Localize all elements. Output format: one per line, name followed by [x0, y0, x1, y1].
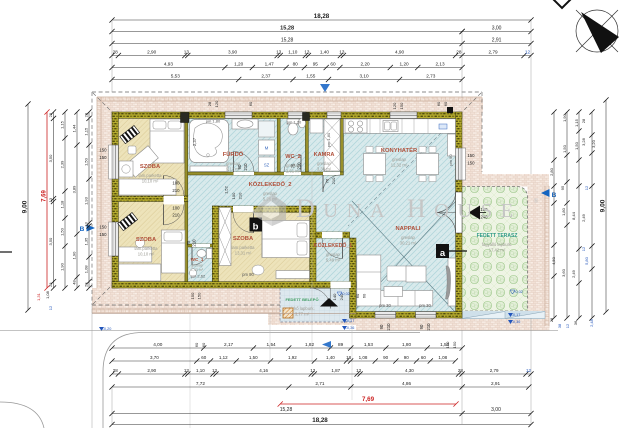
svg-text:9,00: 9,00: [600, 199, 607, 212]
svg-text:2,73: 2,73: [426, 74, 436, 79]
svg-text:28: 28: [581, 118, 586, 123]
svg-text:150: 150: [99, 148, 107, 153]
svg-text:4,50: 4,50: [551, 256, 556, 265]
svg-text:2,90: 2,90: [147, 368, 156, 373]
svg-text:greslap: greslap: [392, 157, 406, 162]
svg-text:4,16: 4,16: [259, 368, 268, 373]
svg-text:pm 90: pm 90: [448, 154, 453, 166]
svg-text:60: 60: [421, 355, 427, 360]
svg-text:1,90: 1,90: [60, 262, 65, 271]
svg-text:SZ: SZ: [264, 163, 270, 168]
svg-text:1,10: 1,10: [196, 368, 205, 373]
svg-text:1,54: 1,54: [267, 342, 277, 347]
svg-text:®: ®: [534, 198, 539, 205]
svg-text:KONYHATÉR: KONYHATÉR: [381, 146, 418, 154]
svg-text:5,53: 5,53: [171, 74, 181, 79]
svg-text:1,20: 1,20: [234, 62, 244, 67]
svg-text:75: 75: [186, 240, 191, 245]
svg-text:15,28: 15,28: [280, 407, 293, 413]
svg-text:1,35: 1,35: [84, 237, 89, 246]
svg-text:4,86: 4,86: [402, 381, 412, 386]
svg-text:3,89: 3,89: [72, 185, 77, 194]
svg-text:28: 28: [48, 112, 53, 117]
svg-text:18: 18: [346, 355, 352, 360]
svg-text:2,79: 2,79: [489, 50, 499, 55]
svg-text:1,50: 1,50: [249, 355, 258, 360]
svg-text:1,50: 1,50: [574, 141, 579, 150]
svg-text:lam.parketta: lam.parketta: [231, 245, 255, 250]
svg-text:60: 60: [355, 293, 360, 298]
svg-text:1,43 m²: 1,43 m²: [191, 268, 204, 272]
svg-text:4,00: 4,00: [153, 342, 163, 347]
svg-text:greslap: greslap: [401, 235, 415, 240]
svg-text:3,50: 3,50: [48, 237, 53, 246]
svg-text:2,39: 2,39: [60, 160, 65, 169]
svg-text:1,93: 1,93: [84, 196, 89, 205]
svg-text:90: 90: [383, 355, 389, 360]
svg-text:1,90: 1,90: [562, 113, 567, 122]
svg-text:2,13: 2,13: [435, 62, 445, 67]
svg-text:140: 140: [332, 293, 337, 300]
svg-text:-0,36: -0,36: [346, 326, 355, 330]
svg-text:3,00: 3,00: [492, 26, 502, 32]
svg-text:SZOBA: SZOBA: [136, 237, 157, 243]
svg-text:3,50: 3,50: [48, 154, 53, 163]
svg-text:1,82: 1,82: [305, 342, 315, 347]
svg-text:13: 13: [84, 222, 89, 227]
svg-text:28: 28: [84, 282, 89, 287]
svg-text:-0,36: -0,36: [512, 320, 521, 324]
svg-text:150: 150: [190, 292, 195, 299]
svg-text:greslap: greslap: [191, 264, 203, 268]
svg-text:1,52: 1,52: [224, 185, 229, 194]
svg-text:M: M: [265, 146, 269, 151]
svg-text:30,21 m²: 30,21 m²: [400, 240, 417, 245]
svg-text:1,44: 1,44: [72, 124, 77, 133]
svg-text:pm 2,62: pm 2,62: [191, 274, 206, 279]
svg-text:210: 210: [386, 323, 391, 331]
svg-text:-0,17: -0,17: [512, 313, 521, 317]
svg-text:1,53: 1,53: [364, 342, 374, 347]
svg-text:150: 150: [99, 232, 107, 237]
svg-text:FÜRDŐ: FÜRDŐ: [223, 151, 244, 158]
svg-text:2,79: 2,79: [490, 368, 499, 373]
svg-text:7,72: 7,72: [196, 381, 206, 386]
svg-text:2,90: 2,90: [147, 50, 157, 55]
svg-text:210: 210: [297, 162, 302, 170]
svg-text:60: 60: [436, 101, 441, 106]
svg-text:1,10: 1,10: [288, 50, 298, 55]
svg-text:13: 13: [356, 368, 362, 373]
svg-text:150: 150: [467, 153, 475, 158]
svg-text:1,50: 1,50: [60, 227, 65, 236]
svg-text:3,77 m²: 3,77 m²: [295, 311, 310, 316]
svg-text:10,10 m²: 10,10 m²: [142, 178, 159, 183]
svg-text:90: 90: [237, 164, 242, 169]
svg-text:NAPPALI: NAPPALI: [395, 226, 420, 232]
svg-text:210: 210: [172, 188, 180, 193]
svg-text:1,31: 1,31: [36, 292, 41, 301]
svg-text:120: 120: [392, 102, 397, 109]
svg-text:90: 90: [419, 324, 424, 329]
svg-text:13: 13: [48, 197, 53, 202]
svg-text:1,92: 1,92: [288, 355, 297, 360]
svg-text:2,37: 2,37: [192, 137, 197, 146]
svg-text:FEDETT BELÉPŐ: FEDETT BELÉPŐ: [285, 297, 318, 302]
svg-text:2,49: 2,49: [581, 213, 586, 222]
svg-text:4,90: 4,90: [395, 50, 405, 55]
svg-text:150: 150: [399, 102, 404, 109]
svg-text:210: 210: [426, 323, 431, 331]
svg-text:100: 100: [231, 192, 236, 199]
svg-text:13: 13: [304, 50, 310, 55]
svg-text:2,71: 2,71: [315, 381, 325, 386]
svg-text:2,17: 2,17: [224, 342, 234, 347]
svg-text:1,12: 1,12: [219, 355, 228, 360]
svg-text:60: 60: [443, 101, 448, 106]
svg-text:FEDETT TERASZ: FEDETT TERASZ: [477, 233, 518, 239]
svg-text:5,80: 5,80: [584, 256, 589, 265]
svg-text:120: 120: [214, 100, 219, 107]
svg-text:b: b: [253, 222, 259, 233]
svg-text:pm 1,80: pm 1,80: [326, 132, 331, 147]
svg-text:1,15: 1,15: [60, 120, 65, 129]
svg-text:WC_2: WC_2: [285, 154, 301, 160]
svg-text:WC_1: WC_1: [191, 257, 204, 262]
svg-text:1,08: 1,08: [359, 355, 368, 360]
svg-text:60: 60: [362, 293, 367, 298]
svg-text:a: a: [440, 248, 446, 259]
svg-text:1,50: 1,50: [84, 157, 89, 166]
svg-text:12: 12: [48, 305, 53, 310]
svg-text:95: 95: [313, 62, 319, 67]
svg-text:1,18: 1,18: [60, 200, 65, 209]
svg-text:210: 210: [192, 239, 197, 247]
svg-text:75: 75: [291, 163, 296, 168]
svg-text:2,37: 2,37: [261, 74, 271, 79]
svg-text:13: 13: [212, 368, 218, 373]
svg-text:5,49 m²: 5,49 m²: [326, 257, 341, 262]
svg-text:1,47: 1,47: [265, 62, 275, 67]
svg-text:28: 28: [113, 50, 119, 55]
svg-text:48: 48: [72, 280, 77, 285]
svg-text:210: 210: [243, 163, 248, 171]
svg-text:1,08: 1,08: [438, 355, 447, 360]
svg-text:greslap: greslap: [263, 191, 277, 196]
svg-text:13: 13: [276, 50, 282, 55]
svg-text:4,93: 4,93: [164, 62, 174, 67]
svg-text:95: 95: [560, 185, 565, 190]
svg-text:1,40: 1,40: [320, 50, 330, 55]
svg-text:76: 76: [325, 178, 330, 183]
svg-text:1,87: 1,87: [331, 368, 340, 373]
svg-text:12,32 m²: 12,32 m²: [391, 162, 408, 167]
svg-text:7,69: 7,69: [362, 396, 375, 403]
svg-text:28: 28: [207, 101, 212, 106]
svg-text:3,70: 3,70: [150, 355, 159, 360]
svg-text:13,31 m²: 13,31 m²: [235, 250, 252, 255]
svg-text:pm 30: pm 30: [419, 303, 431, 308]
svg-text:17,42 m²: 17,42 m²: [489, 247, 506, 252]
svg-text:1,15: 1,15: [574, 118, 579, 127]
svg-text:1,53: 1,53: [440, 342, 450, 347]
svg-text:greslap: greslap: [317, 161, 331, 166]
svg-text:28: 28: [456, 50, 462, 55]
svg-text:60: 60: [248, 101, 253, 106]
svg-text:2,20: 2,20: [361, 62, 371, 67]
svg-text:1,15: 1,15: [84, 127, 89, 136]
svg-text:13: 13: [184, 50, 190, 55]
svg-text:8,44: 8,44: [571, 211, 576, 220]
svg-text:fagyálló lapburk.: fagyálló lapburk.: [482, 242, 513, 247]
svg-text:13: 13: [339, 50, 345, 55]
svg-text:15,28: 15,28: [281, 38, 294, 44]
svg-text:90: 90: [379, 324, 384, 329]
svg-text:1,55: 1,55: [306, 74, 316, 79]
svg-text:2,48: 2,48: [589, 318, 594, 327]
svg-text:pm 30: pm 30: [379, 303, 391, 308]
svg-text:3,10: 3,10: [359, 74, 369, 79]
svg-text:210: 210: [331, 177, 336, 184]
svg-text:SZOBA: SZOBA: [140, 164, 161, 170]
svg-text:3,20: 3,20: [591, 139, 596, 148]
svg-text:210: 210: [172, 213, 180, 218]
svg-text:90: 90: [404, 355, 410, 360]
svg-text:1,80: 1,80: [561, 207, 566, 216]
svg-text:SZOBA: SZOBA: [233, 236, 254, 242]
svg-text:3,60: 3,60: [561, 268, 566, 277]
svg-text:3,90: 3,90: [228, 50, 238, 55]
svg-text:28: 28: [458, 368, 464, 373]
svg-text:greslap: greslap: [326, 252, 340, 257]
svg-text:lam.parketta: lam.parketta: [138, 173, 162, 178]
svg-text:2,49: 2,49: [571, 269, 576, 278]
svg-text:80: 80: [293, 62, 299, 67]
svg-text:12: 12: [581, 246, 586, 251]
svg-text:150: 150: [467, 161, 475, 166]
svg-text:28: 28: [549, 317, 554, 322]
svg-text:pm 1,80: pm 1,80: [206, 119, 221, 124]
svg-text:3,38 m²: 3,38 m²: [317, 166, 332, 171]
svg-text:15,28: 15,28: [280, 26, 294, 32]
svg-text:12: 12: [565, 323, 570, 328]
svg-text:150: 150: [452, 341, 457, 348]
svg-text:13: 13: [184, 368, 190, 373]
svg-text:12: 12: [584, 185, 589, 190]
svg-text:1,50: 1,50: [562, 144, 567, 153]
svg-text:1,40: 1,40: [326, 355, 335, 360]
svg-text:28: 28: [48, 282, 53, 287]
svg-text:28: 28: [84, 112, 89, 117]
svg-text:100: 100: [172, 206, 180, 211]
svg-text:210: 210: [238, 192, 243, 199]
svg-text:pm 1,20: pm 1,20: [287, 120, 302, 125]
svg-text:1,80: 1,80: [402, 342, 412, 347]
svg-text:60: 60: [330, 62, 336, 67]
svg-text:13: 13: [310, 368, 316, 373]
svg-text:1,90: 1,90: [72, 251, 77, 260]
svg-text:150: 150: [99, 225, 107, 230]
svg-text:60: 60: [201, 355, 207, 360]
svg-text:150: 150: [99, 155, 107, 160]
svg-text:pm 90: pm 90: [242, 272, 254, 277]
svg-text:38: 38: [557, 323, 562, 328]
svg-text:100: 100: [172, 181, 180, 186]
svg-text:10,10 m²: 10,10 m²: [138, 251, 155, 256]
svg-text:1,08: 1,08: [84, 265, 89, 274]
svg-text:18,28: 18,28: [314, 13, 330, 20]
svg-text:3,28: 3,28: [581, 137, 586, 146]
svg-text:KAMRA: KAMRA: [314, 152, 335, 158]
svg-text:1,20: 1,20: [400, 62, 410, 67]
svg-text:7,69: 7,69: [42, 190, 48, 202]
svg-text:9,00: 9,00: [22, 200, 29, 213]
svg-text:3,00: 3,00: [491, 407, 501, 413]
svg-text:12: 12: [526, 368, 532, 373]
svg-text:28: 28: [113, 368, 119, 373]
svg-text:18,28: 18,28: [312, 417, 328, 424]
svg-text:36: 36: [573, 320, 578, 325]
svg-text:2,80: 2,80: [549, 167, 554, 176]
svg-text:2,91: 2,91: [492, 38, 502, 44]
svg-text:2,91: 2,91: [491, 381, 501, 386]
svg-text:12: 12: [525, 50, 531, 55]
svg-text:-0,17: -0,17: [346, 319, 355, 323]
svg-text:150: 150: [197, 292, 202, 299]
svg-text:KÖZLEKEDŐ_1: KÖZLEKEDŐ_1: [314, 242, 352, 249]
svg-text:1,08: 1,08: [45, 290, 50, 299]
svg-text:60: 60: [194, 342, 199, 347]
svg-text:lam.parketta: lam.parketta: [134, 246, 158, 251]
svg-text:KÖZLEKEDŐ_2: KÖZLEKEDŐ_2: [249, 181, 292, 188]
svg-text:89: 89: [338, 342, 344, 347]
svg-text:4,30: 4,30: [405, 368, 414, 373]
